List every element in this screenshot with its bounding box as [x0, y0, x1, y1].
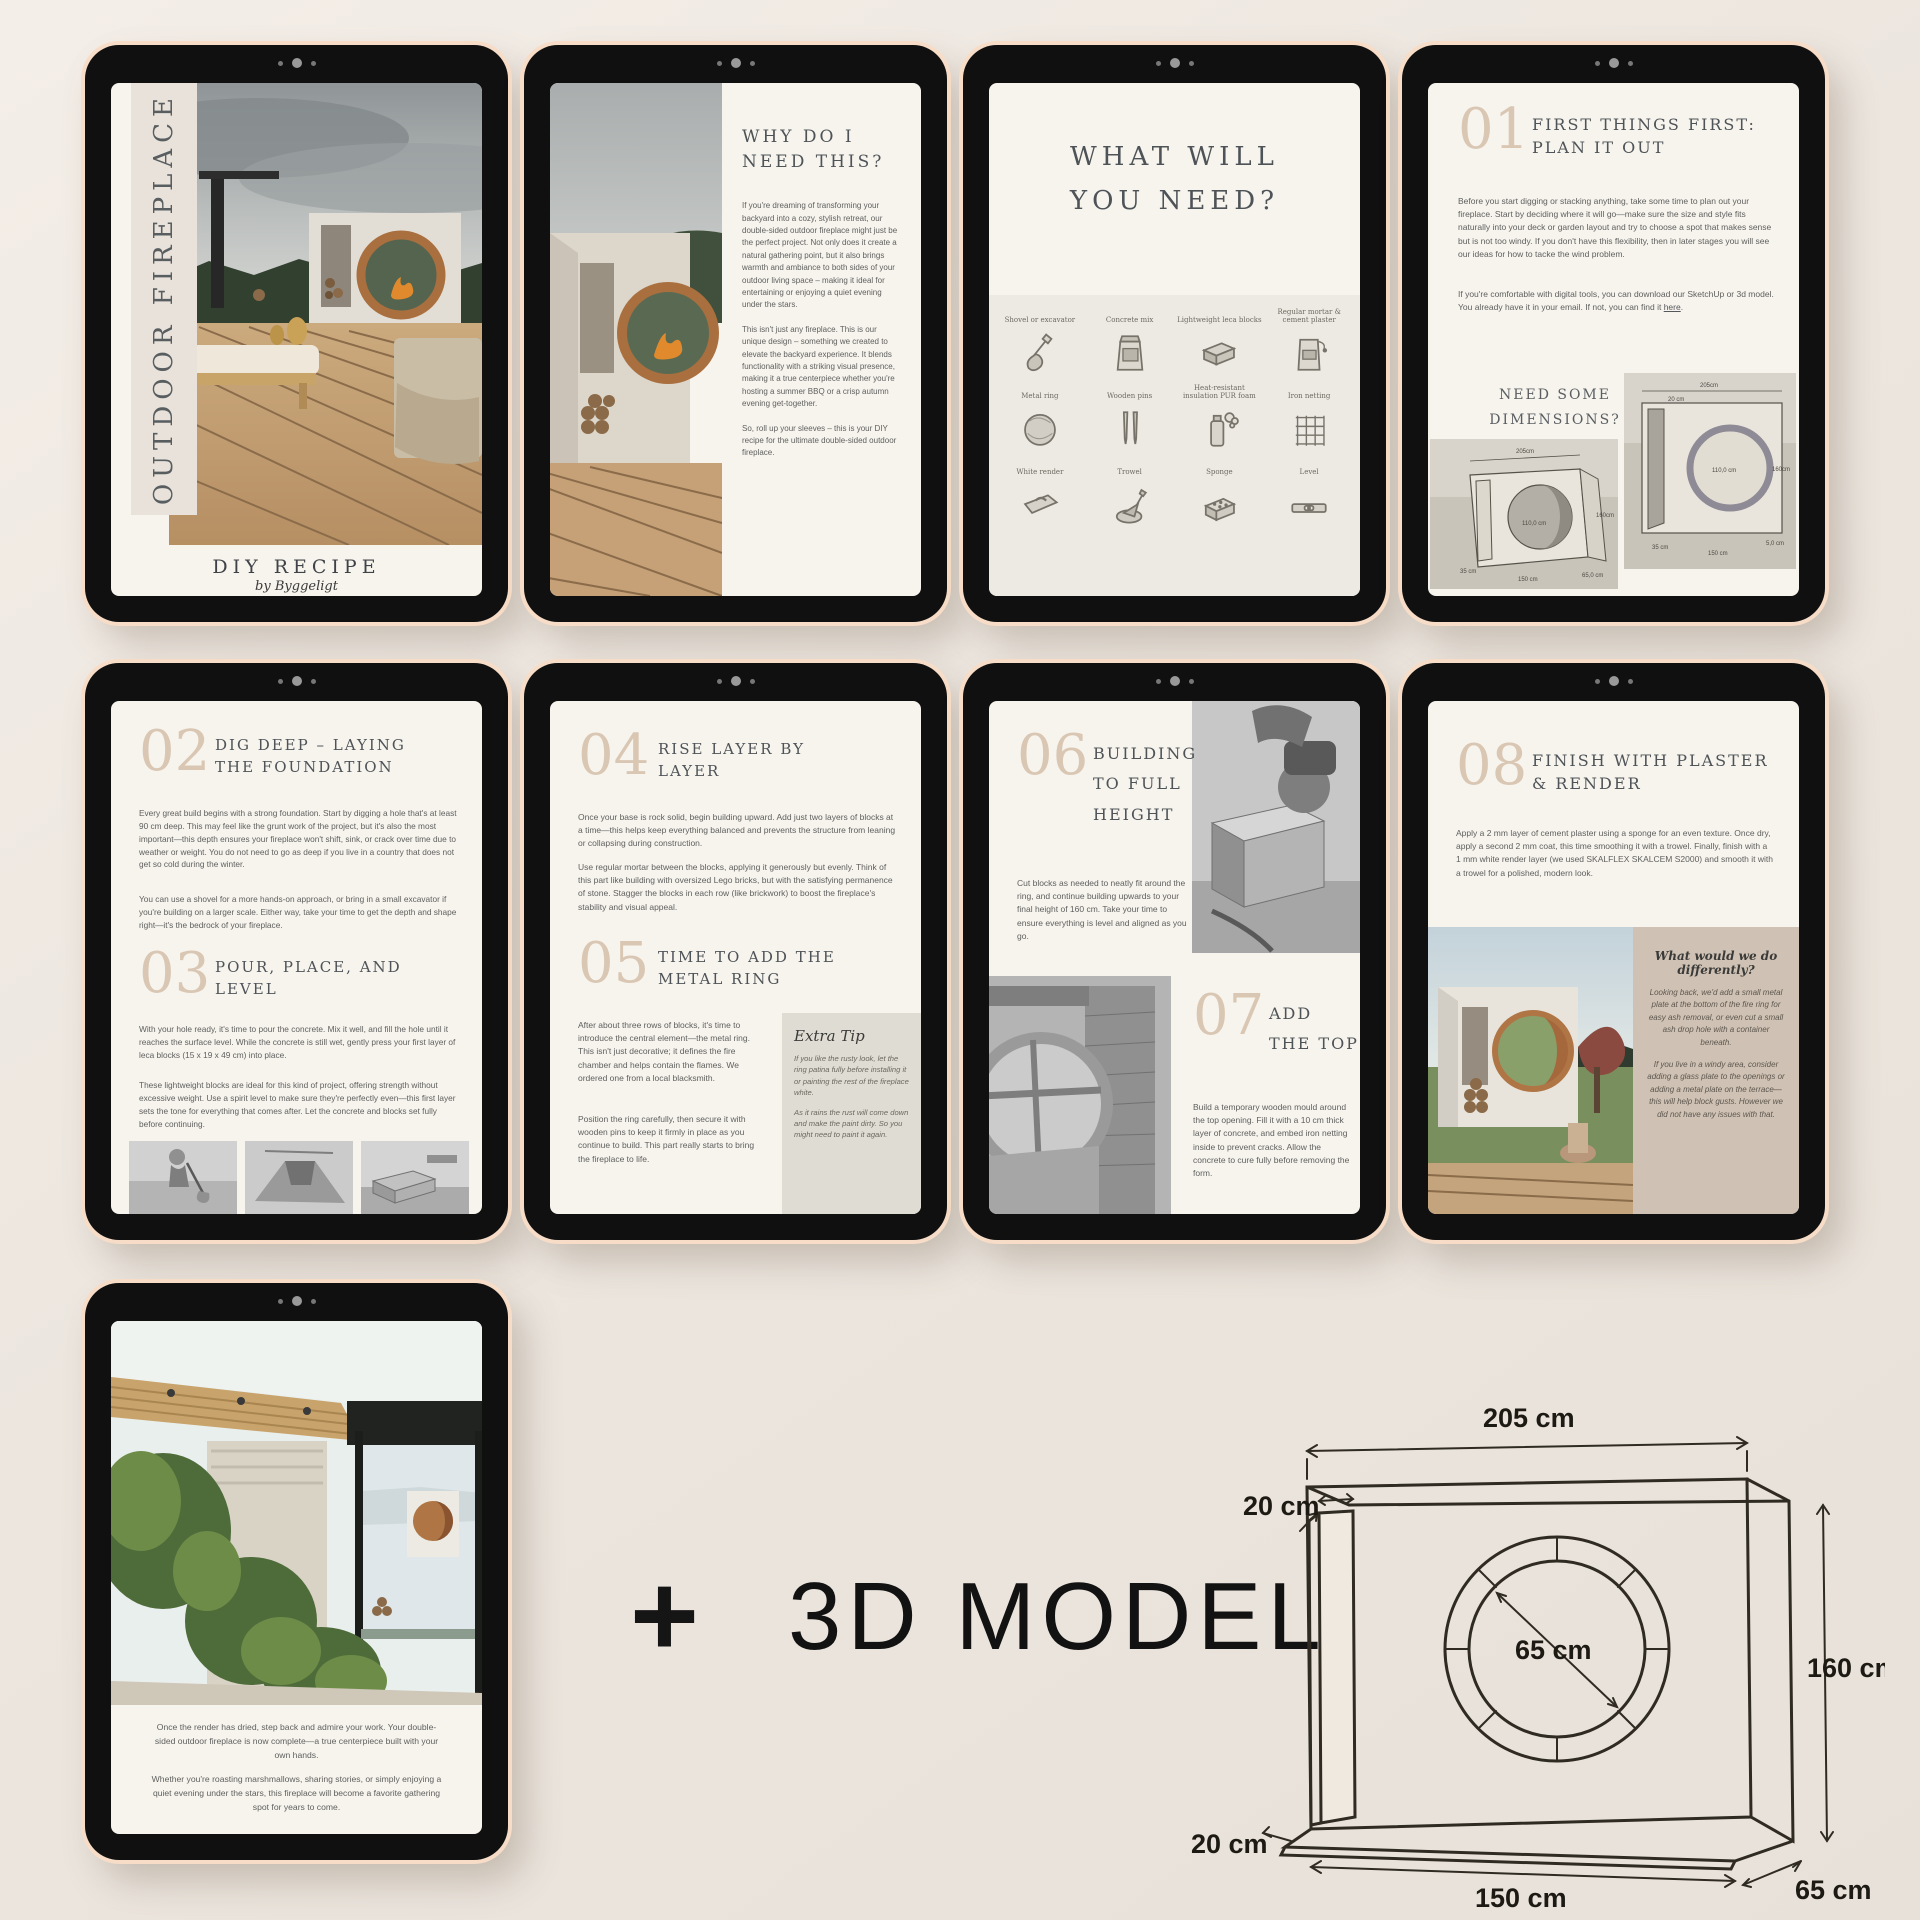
svg-text:35 cm: 35 cm	[1460, 569, 1476, 575]
closing-paragraph-2: Whether you're roasting marshmallows, sh…	[151, 1773, 442, 1814]
svg-text:205cm: 205cm	[1516, 449, 1534, 455]
need-items-panel: Shovel or excavator Concrete mix Li	[989, 295, 1360, 596]
step01-number: 01	[1458, 105, 1529, 155]
tablet-cover: OUTDOOR FIREPLACE DIY RECIPE by Byggelig…	[85, 45, 508, 622]
dim-width-label: 150 cm	[1475, 1883, 1567, 1913]
step05-paragraph-1: After about three rows of blocks, it's t…	[578, 1019, 768, 1085]
dimensions-diagram-front: 205cm 20 cm 110,0 cm 160cm 5,0 cm 35 cm …	[1624, 373, 1796, 569]
cover-photo	[169, 83, 482, 545]
step04-number: 04	[578, 731, 649, 781]
closing-paragraph-1: Once the render has dried, step back and…	[151, 1721, 442, 1762]
why-title: WHY DO I NEED THIS?	[742, 125, 892, 174]
tablet-camera-dots	[524, 676, 947, 686]
cover-subtitle: DIY RECIPE	[111, 556, 482, 578]
need-item: Wooden pins	[1087, 383, 1173, 453]
step02-paragraph-2: You can use a shovel for a more hands-on…	[139, 893, 457, 932]
svg-text:160cm: 160cm	[1596, 513, 1614, 519]
step05-title: TIME TO ADD THE METAL RING	[658, 947, 888, 991]
closing-page: Once the render has dried, step back and…	[111, 1321, 482, 1834]
why-paragraph-3: So, roll up your sleeves – this is your …	[742, 423, 900, 460]
step02-title: DIG DEEP – LAYING THE FOUNDATION	[215, 735, 445, 779]
need-item: Concrete mix	[1087, 307, 1173, 377]
step03-number: 03	[139, 949, 210, 999]
step04-05-page: 04 RISE LAYER BY LAYER Once your base is…	[550, 701, 921, 1214]
why-paragraph-2: This isn't just any fireplace. This is o…	[742, 324, 900, 411]
need-item: Heat-resistant insulation PUR foam	[1177, 383, 1263, 453]
cover-vertical-title: OUTDOOR FIREPLACE	[149, 92, 179, 505]
tablet-camera-dots	[1402, 676, 1825, 686]
trench-sketch-photo	[245, 1141, 353, 1214]
why-page: WHY DO I NEED THIS? If you're dreaming o…	[550, 83, 921, 596]
step01-paragraph-2: If you're comfortable with digital tools…	[1458, 288, 1774, 314]
step01-paragraph-1: Before you start digging or stacking any…	[1458, 195, 1774, 261]
differently-paragraph-2: If you live in a windy area, consider ad…	[1647, 1059, 1785, 1121]
need-item: Metal ring	[997, 383, 1083, 453]
need-page: WHAT WILL YOU NEED? Shovel or excavator …	[989, 83, 1360, 596]
cutting-block-photo	[1192, 701, 1360, 953]
trowel-icon	[1108, 481, 1152, 529]
dim-circle-label: 65 cm	[1515, 1635, 1592, 1665]
extra-tip-paragraph-2: As it rains the rust will come down and …	[794, 1107, 909, 1141]
level-icon	[1287, 481, 1331, 529]
metal-ring-icon	[1018, 405, 1062, 453]
step02-number: 02	[139, 727, 210, 777]
step02-03-page: 02 DIG DEEP – LAYING THE FOUNDATION Ever…	[111, 701, 482, 1214]
dimension-sketch: 205 cm 20 cm 65 cm 160 cm 20 cm 150 cm 6…	[1095, 1355, 1885, 1915]
concrete-mix-bag-icon	[1108, 329, 1152, 377]
wooden-pins-icon	[1108, 405, 1152, 453]
tablet-camera-dots	[963, 58, 1386, 68]
plus-sign: +	[630, 1548, 699, 1684]
step07-paragraph-1: Build a temporary wooden mould around th…	[1193, 1101, 1355, 1180]
step06-paragraph-1: Cut blocks as needed to neatly fit aroun…	[1017, 877, 1195, 943]
svg-text:110,0 cm: 110,0 cm	[1712, 468, 1736, 474]
cover-byline: by Byggeligt	[111, 579, 482, 594]
leca-blocks-icon	[1197, 329, 1241, 377]
step03-paragraph-2: These lightweight blocks are ideal for t…	[139, 1079, 457, 1130]
need-item: Regular mortar & cement plaster	[1266, 307, 1352, 377]
tablet-why: WHY DO I NEED THIS? If you're dreaming o…	[524, 45, 947, 622]
extra-tip-paragraph-1: If you like the rusty look, let the ring…	[794, 1053, 909, 1099]
step04-paragraph-2: Use regular mortar between the blocks, a…	[578, 861, 896, 914]
tablet-camera-dots	[85, 676, 508, 686]
need-title: WHAT WILL YOU NEED?	[989, 135, 1360, 223]
step08-page: 08 FINISH WITH PLASTER & RENDER Apply a …	[1428, 701, 1799, 1214]
render-float-icon	[1018, 481, 1062, 529]
step08-title: FINISH WITH PLASTER & RENDER	[1532, 749, 1782, 795]
svg-text:35 cm: 35 cm	[1652, 545, 1668, 551]
need-item: Lightweight leca blocks	[1177, 307, 1263, 377]
dim-height-label: 160 cm	[1807, 1653, 1885, 1683]
need-item: White render	[997, 459, 1083, 529]
svg-text:160cm: 160cm	[1772, 467, 1790, 473]
why-photo	[550, 83, 722, 596]
need-item: Trowel	[1087, 459, 1173, 529]
step07-number: 07	[1193, 991, 1264, 1041]
extra-tip-title: Extra Tip	[794, 1027, 909, 1045]
tablet-camera-dots	[524, 58, 947, 68]
step06-07-page: 06 BUILDING TO FULL HEIGHT Cut blocks as…	[989, 701, 1360, 1214]
dimensions-diagram-iso: 205cm 160cm 150 cm 65,0 cm 35 cm 110,0 c…	[1430, 439, 1618, 589]
shovel-icon	[1018, 329, 1062, 377]
step05-number: 05	[578, 939, 649, 989]
step06-title: BUILDING TO FULL HEIGHT	[1093, 739, 1203, 830]
tablet-step06-07: 06 BUILDING TO FULL HEIGHT Cut blocks as…	[963, 663, 1386, 1240]
need-item: Iron netting	[1266, 383, 1352, 453]
tablet-step02-03: 02 DIG DEEP – LAYING THE FOUNDATION Ever…	[85, 663, 508, 1240]
cover-page: OUTDOOR FIREPLACE DIY RECIPE by Byggelig…	[111, 83, 482, 596]
here-link[interactable]: here	[1664, 302, 1681, 312]
interior-terrace-photo	[111, 1321, 482, 1705]
step05-paragraph-2: Position the ring carefully, then secure…	[578, 1113, 768, 1166]
step01-p2-period: .	[1681, 302, 1683, 312]
brick-arch-photo	[989, 976, 1171, 1214]
step02-paragraph-1: Every great build begins with a strong f…	[139, 807, 457, 871]
why-paragraph-1: If you're dreaming of transforming your …	[742, 200, 900, 312]
tablet-camera-dots	[85, 1296, 508, 1306]
step03-paragraph-1: With your hole ready, it's time to pour …	[139, 1023, 457, 1062]
svg-text:65,0 cm: 65,0 cm	[1582, 573, 1603, 579]
digging-sketch-photo	[129, 1141, 237, 1214]
step08-paragraph-1: Apply a 2 mm layer of cement plaster usi…	[1456, 827, 1774, 880]
step03-title: POUR, PLACE, AND LEVEL	[215, 957, 445, 1001]
step04-paragraph-1: Once your base is rock solid, begin buil…	[578, 811, 896, 851]
svg-text:110,0 cm: 110,0 cm	[1522, 521, 1546, 527]
differently-box: What would we do differently? Looking ba…	[1633, 927, 1799, 1214]
sponge-icon	[1197, 481, 1241, 529]
step06-number: 06	[1017, 731, 1088, 781]
need-item: Sponge	[1177, 459, 1263, 529]
cover-title-strip: OUTDOOR FIREPLACE	[131, 83, 197, 515]
tablet-step08: 08 FINISH WITH PLASTER & RENDER Apply a …	[1402, 663, 1825, 1240]
need-item: Shovel or excavator	[997, 307, 1083, 377]
extra-tip-box: Extra Tip If you like the rusty look, le…	[782, 1013, 921, 1214]
svg-text:5,0 cm: 5,0 cm	[1766, 541, 1784, 547]
differently-paragraph-1: Looking back, we'd add a small metal pla…	[1647, 987, 1785, 1049]
dimensions-heading: NEED SOME DIMENSIONS?	[1480, 383, 1630, 433]
dim-base-left-label: 20 cm	[1191, 1829, 1268, 1859]
svg-text:205cm: 205cm	[1700, 383, 1718, 389]
step01-title: FIRST THINGS FIRST: PLAN IT OUT	[1532, 113, 1782, 159]
tablet-need: WHAT WILL YOU NEED? Shovel or excavator …	[963, 45, 1386, 622]
pur-foam-can-icon	[1197, 405, 1241, 453]
tablet-step01: 01 FIRST THINGS FIRST: PLAN IT OUT Befor…	[1402, 45, 1825, 622]
tablet-closing: Once the render has dried, step back and…	[85, 1283, 508, 1860]
dim-top-label: 205 cm	[1483, 1403, 1575, 1433]
why-text-col: WHY DO I NEED THIS? If you're dreaming o…	[742, 125, 900, 460]
differently-title: What would we do differently?	[1647, 949, 1785, 977]
iron-netting-icon	[1287, 405, 1331, 453]
tablet-camera-dots	[963, 676, 1386, 686]
svg-text:20 cm: 20 cm	[1668, 397, 1684, 403]
step01-page: 01 FIRST THINGS FIRST: PLAN IT OUT Befor…	[1428, 83, 1799, 596]
tablet-camera-dots	[85, 58, 508, 68]
step04-title: RISE LAYER BY LAYER	[658, 739, 858, 783]
svg-text:150 cm: 150 cm	[1518, 577, 1538, 583]
blocks-sketch-photo	[361, 1141, 469, 1214]
dim-depth-label: 65 cm	[1795, 1875, 1872, 1905]
step07-title: ADD THE TOP	[1269, 999, 1359, 1060]
dim-wall-label: 20 cm	[1243, 1491, 1320, 1521]
tablet-step04-05: 04 RISE LAYER BY LAYER Once your base is…	[524, 663, 947, 1240]
finished-fireplace-photo	[1428, 927, 1633, 1214]
svg-text:150 cm: 150 cm	[1708, 551, 1728, 557]
tablet-camera-dots	[1402, 58, 1825, 68]
step08-number: 08	[1456, 741, 1527, 791]
step01-p2-text: If you're comfortable with digital tools…	[1458, 289, 1774, 312]
cement-bag-icon	[1287, 329, 1331, 377]
need-item: Level	[1266, 459, 1352, 529]
